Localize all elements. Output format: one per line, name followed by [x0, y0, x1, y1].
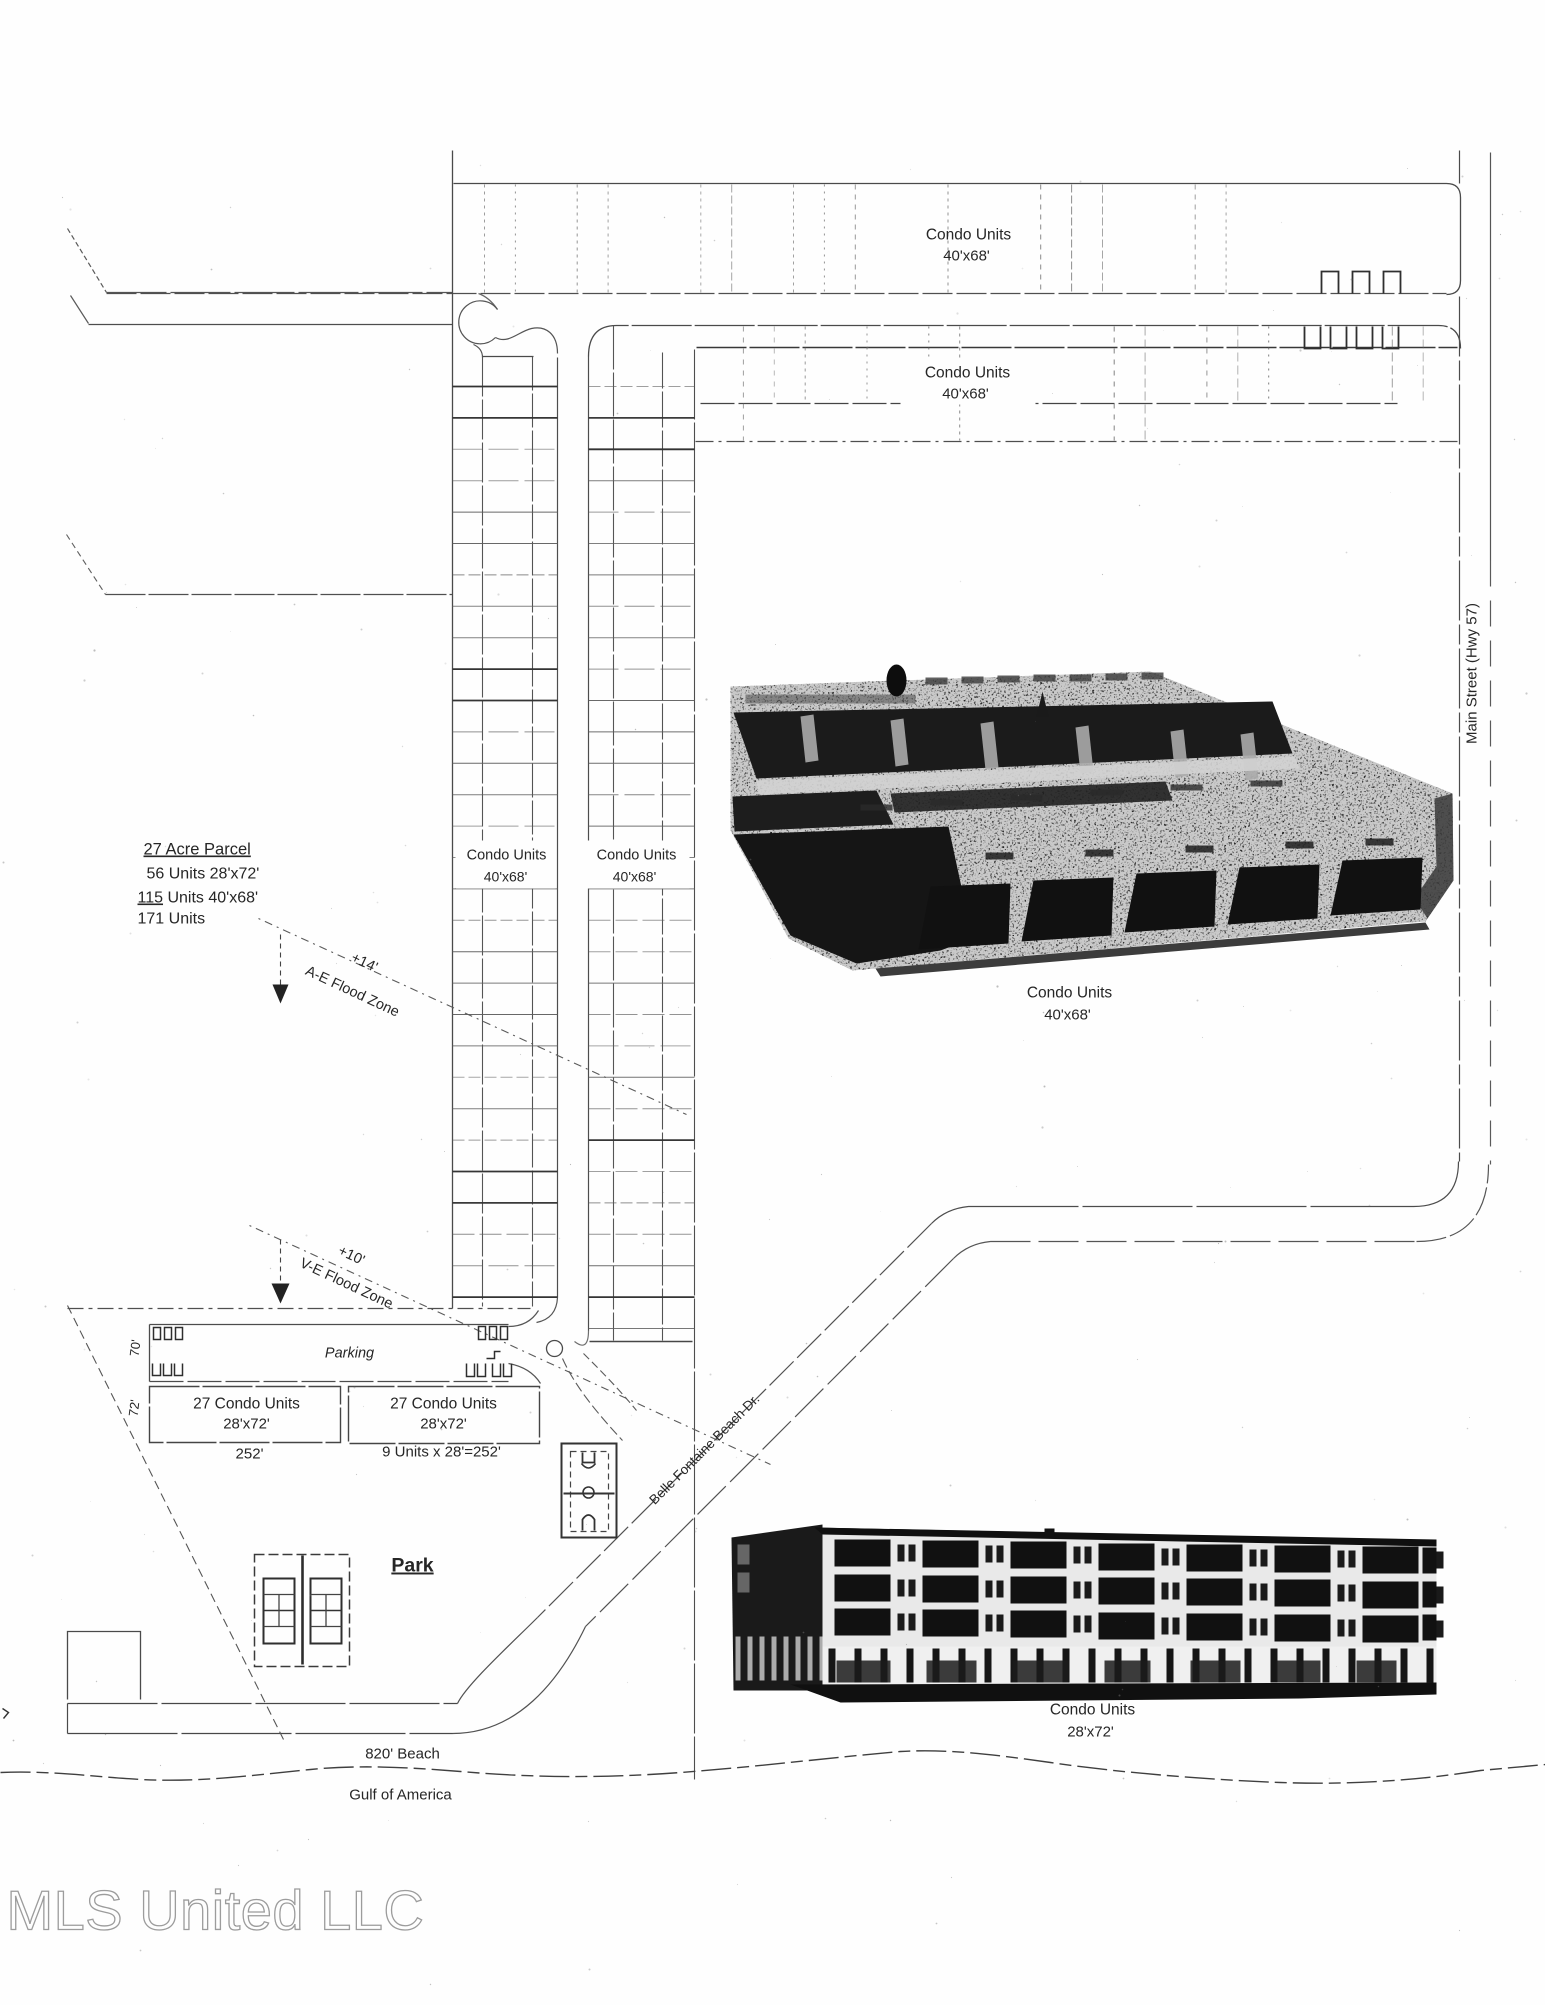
svg-text:40'x68': 40'x68' [942, 386, 989, 403]
svg-text:40'x68': 40'x68' [484, 869, 528, 885]
svg-text:70': 70' [127, 1339, 144, 1358]
svg-text:40'x68': 40'x68' [1044, 1007, 1091, 1024]
svg-text:28'x72': 28'x72' [223, 1416, 270, 1433]
svg-text:Park: Park [391, 1555, 433, 1577]
svg-text:115 Units 40'x68': 115 Units 40'x68' [138, 890, 259, 907]
svg-text:Parking: Parking [325, 1346, 374, 1362]
svg-text:9 Units x 28'=252': 9 Units x 28'=252' [382, 1444, 501, 1461]
svg-text:Condo Units: Condo Units [926, 227, 1012, 244]
svg-text:56 Units 28'x72': 56 Units 28'x72' [147, 866, 260, 883]
svg-text:Gulf of America: Gulf of America [349, 1787, 452, 1804]
svg-text:Main Street (Hwy 57): Main Street (Hwy 57) [1464, 603, 1481, 744]
svg-text:MLS United LLC: MLS United LLC [7, 1879, 425, 1942]
svg-text:40'x68': 40'x68' [943, 248, 990, 265]
svg-text:Condo Units: Condo Units [1050, 1702, 1136, 1719]
svg-text:72': 72' [126, 1399, 143, 1418]
svg-text:27 Condo Units: 27 Condo Units [390, 1396, 497, 1413]
svg-text:Condo Units: Condo Units [467, 848, 547, 864]
svg-text:40'x68': 40'x68' [613, 869, 657, 885]
svg-text:Condo Units: Condo Units [925, 365, 1011, 382]
svg-text:252': 252' [236, 1446, 264, 1463]
svg-text:171 Units: 171 Units [138, 911, 206, 928]
svg-text:27 Acre Parcel: 27 Acre Parcel [144, 841, 251, 859]
svg-text:27 Condo Units: 27 Condo Units [193, 1396, 300, 1413]
svg-text:28'x72': 28'x72' [420, 1416, 467, 1433]
svg-text:820' Beach: 820' Beach [365, 1746, 440, 1763]
svg-text:Condo Units: Condo Units [597, 848, 677, 864]
svg-text:28'x72': 28'x72' [1067, 1724, 1114, 1741]
svg-text:Condo Units: Condo Units [1027, 985, 1113, 1002]
